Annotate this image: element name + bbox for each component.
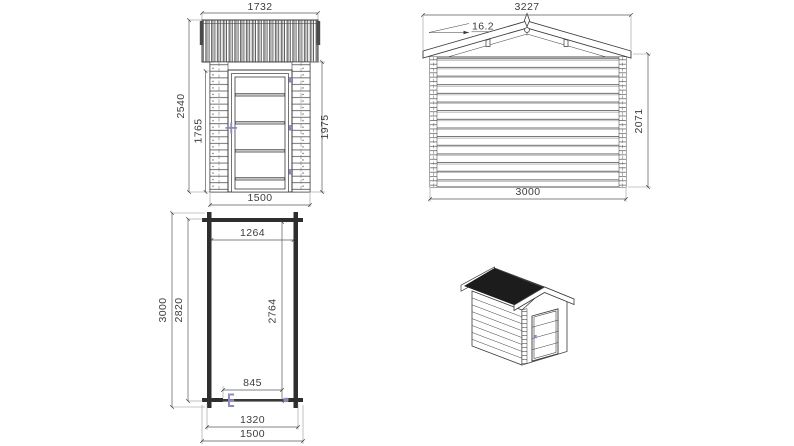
iso-door: [532, 309, 558, 361]
door-rail: [235, 178, 284, 181]
dim-label-3000-plan: 3000: [157, 298, 169, 323]
door-rail: [235, 94, 284, 97]
roof-bracket: [564, 39, 568, 46]
iso-corner-log-ends: [522, 309, 527, 365]
plan-door-hinge-icon: [228, 394, 234, 408]
dim-label-2764: 2764: [267, 299, 279, 324]
dim-label-1975: 1975: [319, 115, 331, 140]
dim-front-wall-width: 1500: [210, 192, 310, 207]
dim-plan-wall-width: 1320: [207, 404, 298, 430]
dim-side-wall-height: 2071: [628, 54, 651, 187]
dim-label-1264: 1264: [240, 227, 265, 239]
dim-label-1732: 1732: [248, 1, 273, 13]
dim-front-wall-height: 1975: [310, 62, 331, 192]
dim-label-845: 845: [243, 377, 262, 389]
dim-label-1500-plan: 1500: [240, 428, 265, 440]
door-hinge: [289, 78, 293, 83]
roof-pitch-annotation: 16.2: [429, 21, 495, 35]
plan-door-latch-icon: [284, 398, 289, 401]
dim-front-overall-width: 1732: [202, 1, 318, 20]
front-elevation-view: 1732: [168, 0, 340, 212]
dim-label-1765: 1765: [193, 119, 205, 144]
dim-label-1320: 1320: [240, 414, 265, 426]
door-rail: [235, 150, 284, 153]
dim-label-2820: 2820: [173, 298, 185, 323]
door-hinge: [289, 126, 293, 131]
iso-door-handle: [535, 335, 537, 338]
side-roof: [423, 14, 631, 60]
dim-plan-depth-wall: 2820: [173, 219, 203, 401]
pitch-arrow-icon: [464, 31, 470, 34]
dim-label-1500-front: 1500: [248, 192, 273, 204]
dim-side-wall-width: 3000: [430, 186, 626, 202]
front-roof-fascia: [200, 20, 320, 62]
fascia-bracket-right: [317, 21, 321, 45]
door-rail: [235, 122, 284, 125]
dim-plan-inner-width: 1264: [212, 223, 294, 244]
fascia-bracket-left: [200, 21, 204, 45]
dim-label-2540: 2540: [175, 94, 187, 119]
technical-drawing-sheet: 1732: [0, 0, 794, 446]
isometric-view: [448, 256, 608, 406]
roof-bracket: [486, 39, 490, 46]
door-hinge: [289, 170, 293, 175]
plan-door: [222, 394, 289, 408]
front-door: [226, 70, 293, 192]
dim-label-2071: 2071: [633, 109, 645, 134]
side-elevation-view: 3227 16.2: [415, 0, 665, 215]
dim-plan-depth-inner: 2764: [267, 222, 283, 401]
dim-label-3227: 3227: [515, 1, 540, 13]
floor-plan-view: 3000 2820 1264 2764 845: [145, 208, 330, 446]
side-wall: [430, 57, 626, 187]
dim-label-roof-angle: 16.2: [472, 21, 494, 33]
dim-label-3000-side: 3000: [516, 186, 541, 198]
